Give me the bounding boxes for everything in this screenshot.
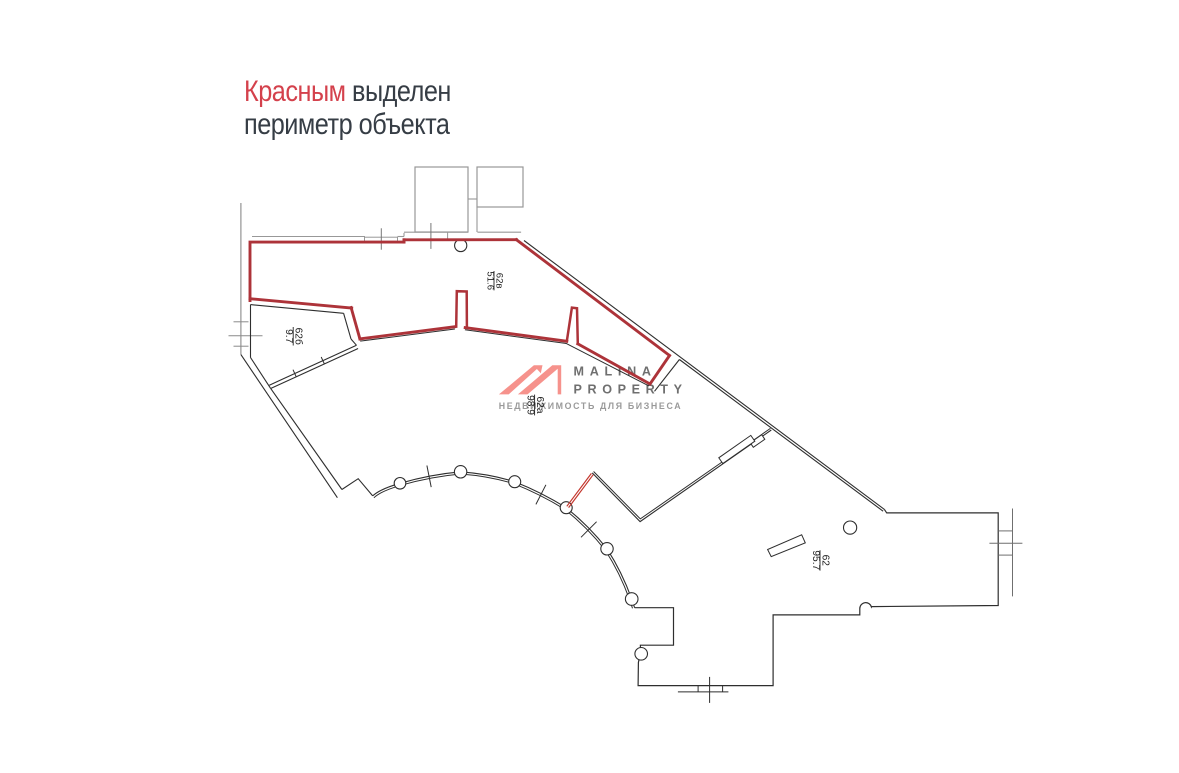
svg-text:MALINA: MALINA xyxy=(574,364,657,378)
svg-text:PROPERTY: PROPERTY xyxy=(574,382,688,396)
svg-text:9.7: 9.7 xyxy=(283,329,294,343)
svg-text:95.7: 95.7 xyxy=(810,550,821,570)
svg-text:98.9: 98.9 xyxy=(525,395,536,415)
